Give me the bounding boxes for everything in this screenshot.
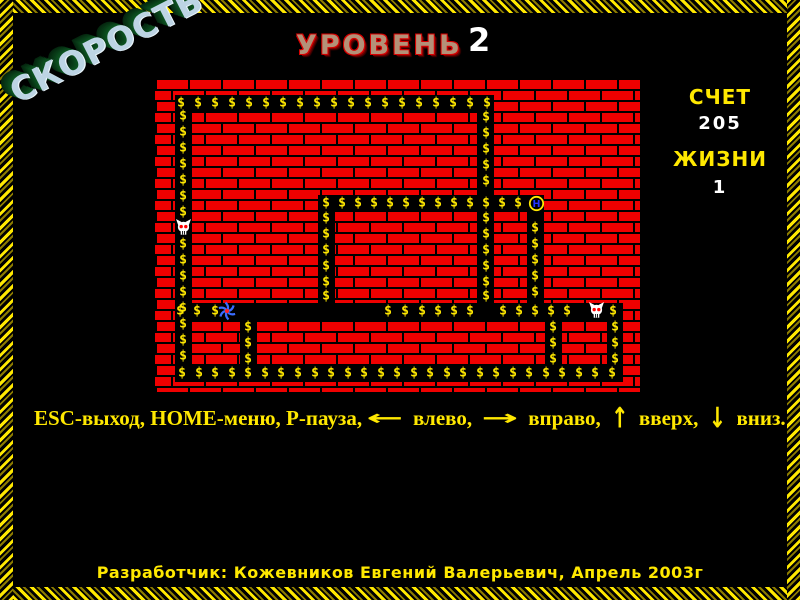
dollar-pellet: $: [313, 96, 321, 111]
dollar-pellet: $: [434, 304, 442, 319]
dollar-pellet: $: [179, 333, 187, 348]
dollar-pellet: $: [549, 320, 557, 335]
skull-eye: [180, 225, 183, 228]
dollar-pellet: $: [330, 96, 338, 111]
dollar-pellet: $: [498, 196, 506, 211]
dollar-pellet: $: [549, 352, 557, 367]
dollar-pellet: $: [322, 227, 330, 242]
player-core: [225, 309, 229, 313]
dollar-pellet: $: [575, 366, 583, 381]
dollar-pellet: $: [178, 366, 186, 381]
dollar-pellet: $: [311, 366, 319, 381]
dollar-pellet: $: [393, 366, 401, 381]
dollar-pellet: $: [179, 157, 187, 172]
dollar-pellet: $: [344, 366, 352, 381]
dollar-pellet: $: [322, 211, 330, 226]
instruction-text: вверх,: [634, 406, 704, 430]
dollar-pellet: $: [476, 366, 484, 381]
dollar-pellet: $: [245, 96, 253, 111]
dollar-pellet: $: [426, 366, 434, 381]
dollar-pellet: $: [466, 196, 474, 211]
dollar-pellet: $: [370, 196, 378, 211]
dollar-pellet: $: [179, 173, 187, 188]
skull-eye: [593, 308, 596, 311]
dollar-pellet: $: [294, 366, 302, 381]
dollar-pellet: $: [228, 366, 236, 381]
chain-border-top: [0, 0, 800, 13]
dollar-pellet: $: [322, 259, 330, 274]
dollar-pellet: $: [418, 304, 426, 319]
bonus-letter: H: [533, 199, 541, 210]
dollar-pellet: $: [195, 366, 203, 381]
dollar-pellet: $: [482, 211, 490, 226]
dollar-pellet: $: [347, 96, 355, 111]
right-arrow-icon: →: [482, 406, 519, 430]
dollar-pellet: $: [482, 259, 490, 274]
dollar-pellet: $: [211, 96, 219, 111]
dollar-pellet: $: [277, 366, 285, 381]
dollar-pellet: $: [418, 196, 426, 211]
dollar-pellet: $: [179, 141, 187, 156]
chain-border-right: [787, 0, 800, 600]
dollar-pellet: $: [354, 196, 362, 211]
instruction-text: влево,: [408, 406, 478, 430]
dollar-pellet: $: [434, 196, 442, 211]
dollar-pellet: $: [611, 336, 619, 351]
dollar-pellet: $: [531, 237, 539, 252]
dollar-pellet: $: [179, 269, 187, 284]
dollar-pellet: $: [402, 196, 410, 211]
level-label: УРОВЕНЬ: [296, 30, 463, 61]
left-arrow-icon: ←: [366, 406, 403, 430]
dollar-pellet: $: [482, 289, 490, 304]
dollar-pellet: $: [322, 243, 330, 258]
dollar-pellet: $: [398, 96, 406, 111]
dollar-pellet: $: [179, 301, 187, 316]
lives-value: 1: [655, 177, 785, 198]
bonus-item-h: H: [528, 195, 548, 215]
dollar-pellet: $: [525, 366, 533, 381]
dollar-pellet: $: [611, 320, 619, 335]
dollar-pellet: $: [179, 109, 187, 124]
dollar-pellet: $: [558, 366, 566, 381]
dollar-pellet: $: [608, 366, 616, 381]
down-arrow-icon: ↓: [709, 402, 727, 434]
level-value: 2: [468, 21, 490, 59]
dollar-pellet: $: [549, 336, 557, 351]
dollar-pellet: $: [466, 304, 474, 319]
skull-enemy: [175, 219, 195, 239]
dollar-pellet: $: [547, 304, 555, 319]
maze: $$$$$$$$$$$$$$$$$$$$$$$$$$$$$$$$$$$$$$$$…: [155, 78, 640, 392]
dollar-pellet: $: [228, 96, 236, 111]
dollar-pellet: $: [360, 366, 368, 381]
dollar-pellet: $: [381, 96, 389, 111]
dollar-pellet: $: [179, 317, 187, 332]
dollar-pellet: $: [261, 366, 269, 381]
dollar-pellet: $: [179, 205, 187, 220]
dollar-pellet: $: [327, 366, 335, 381]
dollar-pellet: $: [483, 96, 491, 111]
dollar-pellet: $: [179, 349, 187, 364]
dollar-pellet: $: [279, 96, 287, 111]
player-character: [217, 301, 237, 321]
dollar-pellet: $: [611, 352, 619, 367]
dollar-pellet: $: [563, 304, 571, 319]
dollar-pellet: $: [482, 158, 490, 173]
dollar-pellet: $: [322, 275, 330, 290]
instruction-text: вниз.: [731, 406, 785, 430]
dollar-pellet: $: [466, 96, 474, 111]
skull-enemy: [588, 302, 608, 322]
instruction-text: вправо,: [523, 406, 606, 430]
skull-eye: [184, 225, 187, 228]
dollar-pellet: $: [296, 96, 304, 111]
instructions: ESC-выход, HOME-меню, P-пауза,← влево, →…: [34, 406, 794, 431]
dollar-pellet: $: [193, 304, 201, 319]
dollar-pellet: $: [482, 227, 490, 242]
dollar-pellet: $: [482, 110, 490, 125]
up-arrow-icon: ↑: [611, 402, 629, 434]
dollar-pellet: $: [531, 253, 539, 268]
dollar-pellet: $: [364, 96, 372, 111]
dollar-pellet: $: [482, 243, 490, 258]
dollar-pellet: $: [386, 196, 394, 211]
lives-label: ЖИЗНИ: [655, 147, 785, 171]
dollar-pellet: $: [591, 366, 599, 381]
dollar-pellet: $: [443, 366, 451, 381]
dollar-pellet: $: [492, 366, 500, 381]
dollar-pellet: $: [410, 366, 418, 381]
dollar-pellet: $: [179, 125, 187, 140]
dollar-pellet: $: [244, 366, 252, 381]
dollar-pellet: $: [449, 96, 457, 111]
dollar-pellet: $: [531, 304, 539, 319]
dollar-pellet: $: [531, 285, 539, 300]
dollar-pellet: $: [514, 196, 522, 211]
score-value: 205: [655, 113, 785, 134]
dollar-pellet: $: [401, 304, 409, 319]
dollar-pellet: $: [211, 366, 219, 381]
dollar-pellet: $: [179, 189, 187, 204]
dollar-pellet: $: [542, 366, 550, 381]
dollar-pellet: $: [244, 352, 252, 367]
dollar-pellet: $: [322, 196, 330, 211]
dollar-pellet: $: [179, 253, 187, 268]
dollar-pellet: $: [415, 96, 423, 111]
chain-border-bottom: [0, 587, 800, 600]
credits-line: Разработчик: Кожевников Евгений Валерьев…: [0, 563, 800, 582]
dollar-pellet: $: [179, 285, 187, 300]
dollar-pellet: $: [515, 304, 523, 319]
dollar-pellet: $: [244, 320, 252, 335]
dollar-pellet: $: [499, 304, 507, 319]
dollar-pellet: $: [482, 174, 490, 189]
dollar-pellet: $: [432, 96, 440, 111]
dollar-pellet: $: [531, 221, 539, 236]
dollar-pellet: $: [450, 196, 458, 211]
game-screen: СКОРОСТЬ УРОВЕНЬ 2 СЧЕТ 205 ЖИЗНИ 1 $$$$…: [0, 0, 800, 600]
dollar-pellet: $: [482, 196, 490, 211]
score-label: СЧЕТ: [655, 85, 785, 109]
dollar-pellet: $: [338, 196, 346, 211]
dollar-pellet: $: [377, 366, 385, 381]
dollar-pellet: $: [322, 289, 330, 304]
dollar-pellet: $: [194, 96, 202, 111]
dollar-pellet: $: [482, 142, 490, 157]
dollar-pellet: $: [384, 304, 392, 319]
dollar-pellet: $: [244, 336, 252, 351]
dollar-pellet: $: [459, 366, 467, 381]
dollar-pellet: $: [482, 275, 490, 290]
dollar-pellet: $: [531, 269, 539, 284]
corridor: [318, 195, 544, 212]
dollar-pellet: $: [262, 96, 270, 111]
dollar-pellet: $: [609, 304, 617, 319]
dollar-pellet: $: [509, 366, 517, 381]
dollar-pellet: $: [450, 304, 458, 319]
skull-eye: [597, 308, 600, 311]
dollar-pellet: $: [482, 126, 490, 141]
instruction-text: ESC-выход, HOME-меню, P-пауза,: [34, 406, 362, 430]
